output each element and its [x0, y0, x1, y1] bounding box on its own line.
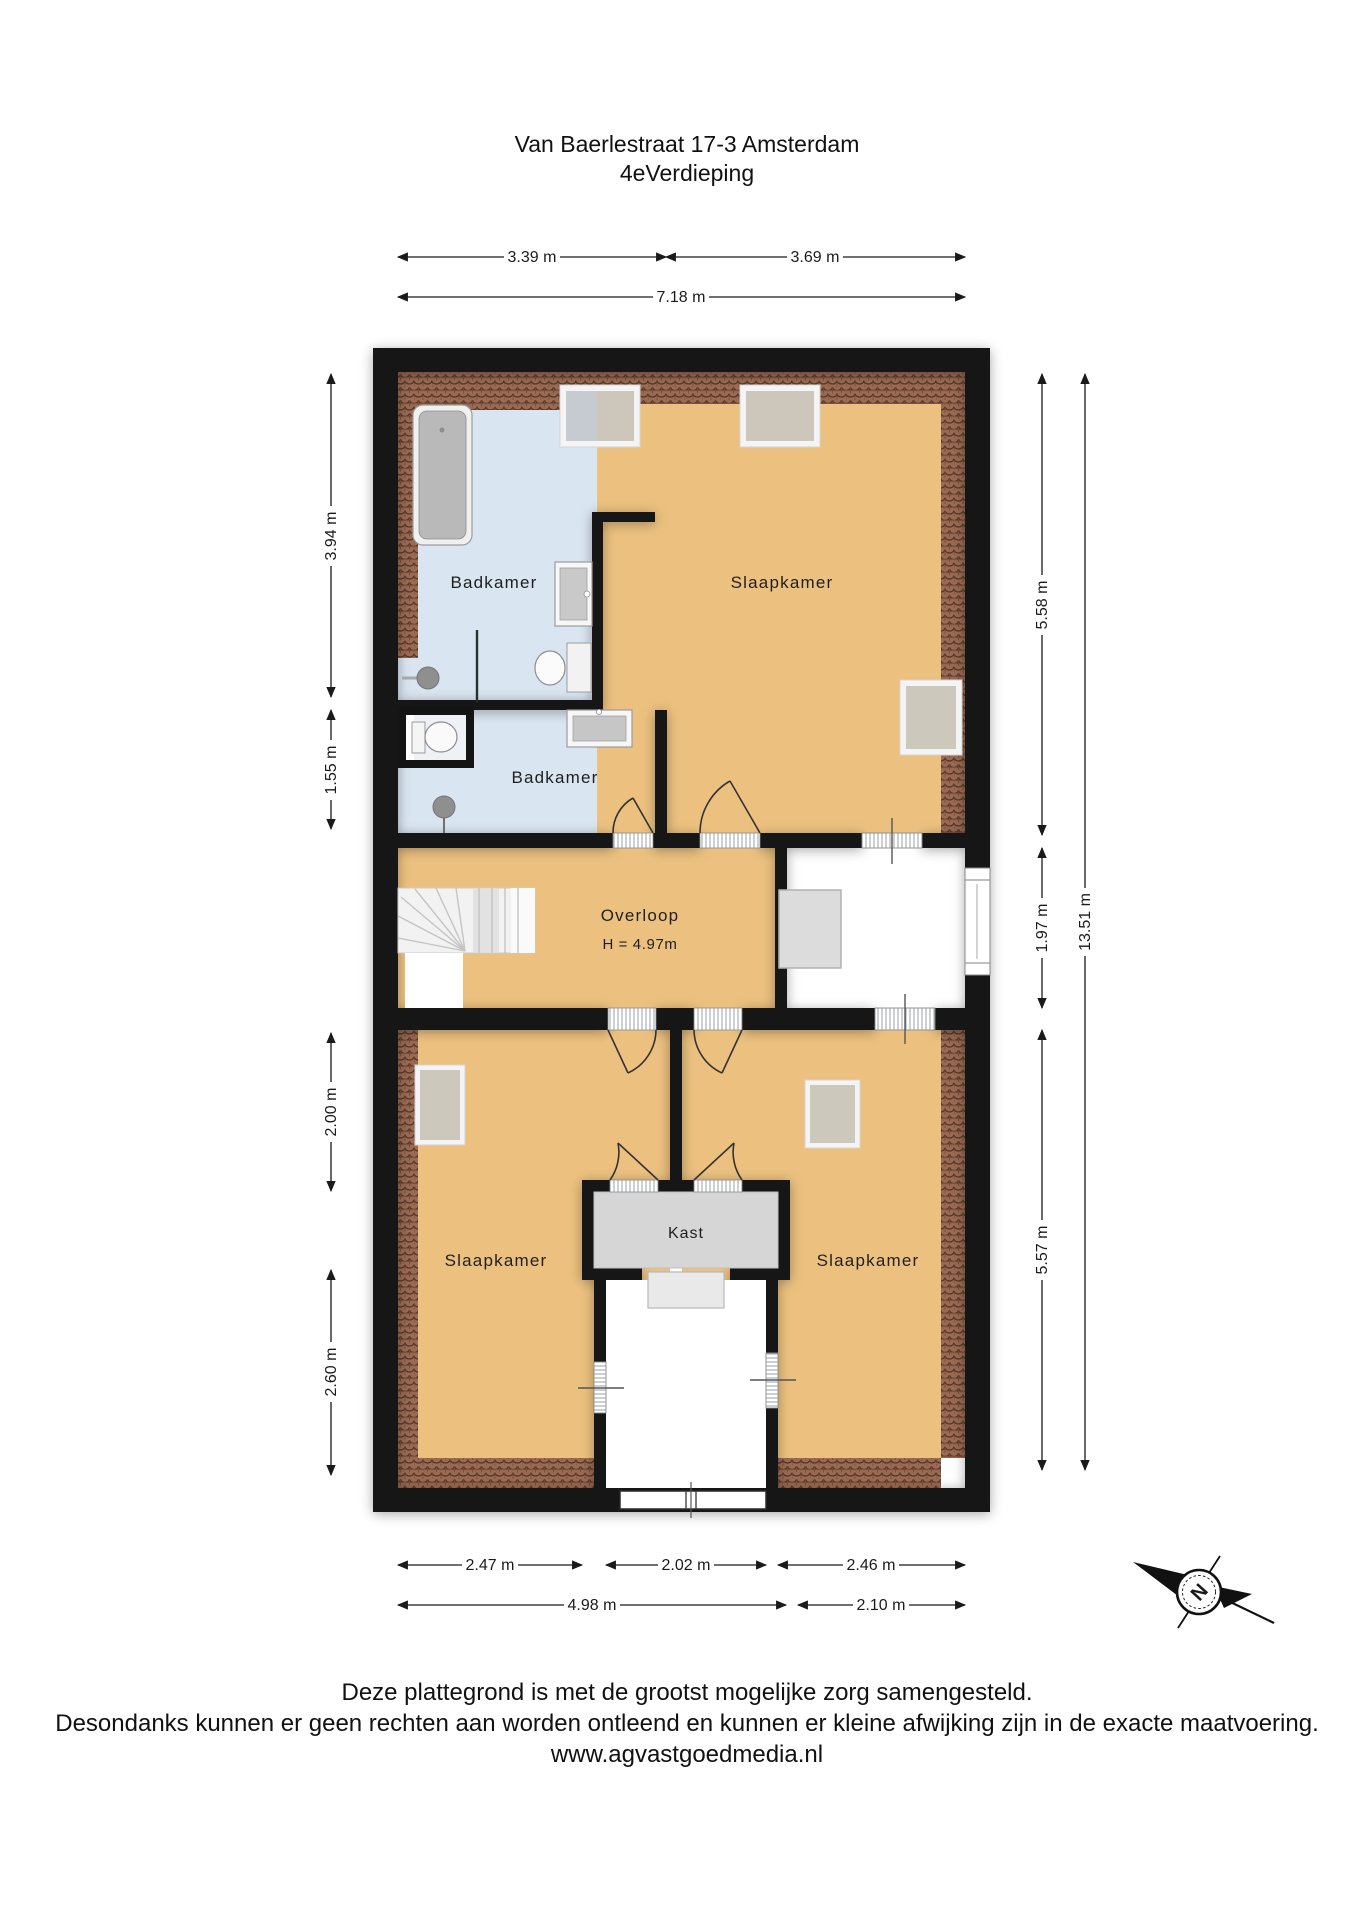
toilet-alcove [398, 707, 474, 768]
floorplan-page: Van Baerlestraat 17-3 Amsterdam 4eVerdie… [0, 0, 1358, 1920]
roof-window-icon [415, 1065, 465, 1145]
hall-cabinet [779, 890, 841, 968]
dim-bottom-2: 2.02 m [662, 1557, 711, 1574]
dim-top-1: 3.39 m [508, 249, 557, 266]
window-icon [965, 868, 990, 975]
dim-right-1: 5.58 m [1034, 581, 1051, 630]
dim-top-total: 7.18 m [657, 289, 706, 306]
dim-right-3: 5.57 m [1034, 1226, 1051, 1275]
wall-exterior-left [373, 348, 398, 1512]
dim-bottom-5: 2.10 m [857, 1597, 906, 1614]
room-label-slaapkamer-right: Slaapkamer [817, 1251, 920, 1270]
room-label-slaapkamer-left: Slaapkamer [445, 1251, 548, 1270]
dim-bottom-4: 4.98 m [568, 1597, 617, 1614]
page-subtitle: 4eVerdieping [620, 160, 754, 186]
room-label-slaapkamer-top: Slaapkamer [731, 573, 834, 592]
dormer-window-icon [560, 385, 640, 447]
compass-icon: N [1133, 1556, 1274, 1628]
loggia-floor [606, 1280, 766, 1488]
room-label-overloop-height: H = 4.97m [602, 936, 677, 953]
sink-icon [567, 709, 632, 747]
footer-disclaimer: Deze plattegrond is met de grootst mogel… [55, 1679, 1319, 1768]
dormer-window-icon [740, 385, 820, 447]
dim-bottom-1: 2.47 m [466, 1557, 515, 1574]
toilet-icon [412, 722, 425, 753]
roof-window-icon [900, 680, 962, 755]
stair-void [405, 953, 463, 1008]
floorplan-drawing: Van Baerlestraat 17-3 Amsterdam 4eVerdie… [0, 0, 1358, 1920]
dim-left-3: 2.00 m [323, 1088, 340, 1137]
dim-left-4: 2.60 m [323, 1348, 340, 1397]
footer-line-3: www.agvastgoedmedia.nl [550, 1741, 823, 1768]
roof-window-icon [805, 1080, 860, 1148]
sink-icon [555, 562, 592, 626]
room-label-badkamer-top: Badkamer [450, 573, 537, 592]
room-label-kast: Kast [668, 1225, 704, 1242]
footer-line-2: Desondanks kunnen er geen rechten aan wo… [55, 1710, 1319, 1737]
bathtub-icon [413, 405, 472, 545]
dim-right-2: 1.97 m [1034, 904, 1051, 953]
dim-bottom-3: 2.46 m [847, 1557, 896, 1574]
room-label-overloop: Overloop [601, 906, 680, 925]
page-title: Van Baerlestraat 17-3 Amsterdam [515, 131, 860, 157]
dim-left-2: 1.55 m [323, 746, 340, 795]
dim-right-total: 13.51 m [1077, 893, 1094, 951]
room-label-badkamer-mid: Badkamer [511, 768, 598, 787]
footer-line-1: Deze plattegrond is met de grootst mogel… [341, 1679, 1032, 1706]
dim-left-1: 3.94 m [323, 512, 340, 561]
dim-top-2: 3.69 m [791, 249, 840, 266]
wall-exterior-top [373, 348, 990, 372]
